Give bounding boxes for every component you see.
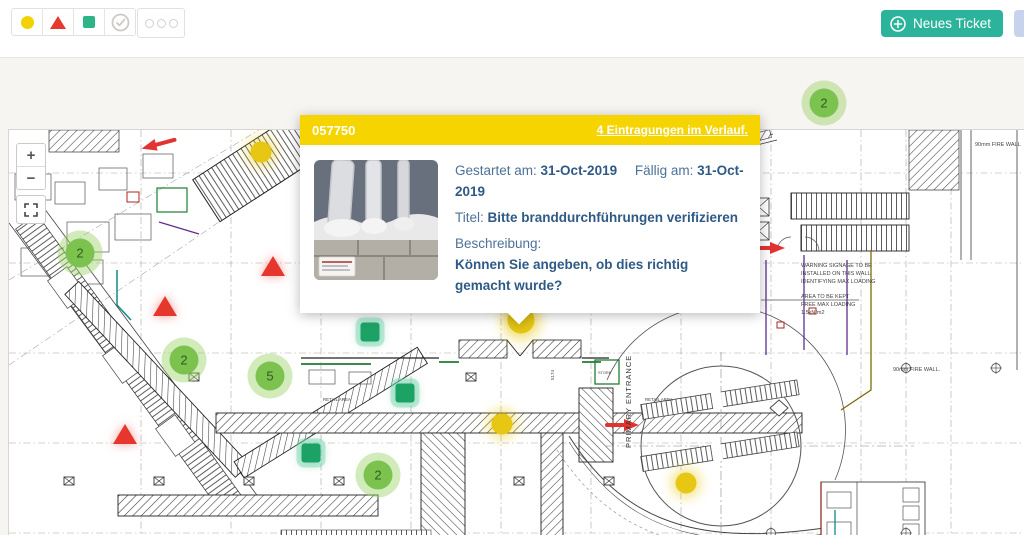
dimension-label-1: 5174 <box>550 369 555 380</box>
ticket-marker-yellow-circle[interactable] <box>676 473 697 494</box>
fire-wall-top-label: 90mm FIRE WALL <box>975 142 1021 148</box>
title-value: Bitte branddurchführungen verifizieren <box>488 210 739 225</box>
cluster-marker[interactable]: 2 <box>364 461 393 490</box>
zoom-in-button[interactable]: + <box>17 144 45 166</box>
red-triangle-icon <box>50 16 66 29</box>
filter-done-button[interactable] <box>105 9 135 35</box>
area-kept-label-line2: FREE MAX LOADING <box>801 302 855 308</box>
title-label: Titel: <box>455 210 484 225</box>
filter-green-square-button[interactable] <box>74 9 105 35</box>
fire-wall-right-label: 90mm FIRE WALL. <box>893 367 941 373</box>
description-label: Beschreibung: <box>455 234 746 255</box>
ticket-id: 057750 <box>312 123 355 138</box>
plus-circle-icon <box>890 16 906 32</box>
ticket-popup: 057750 4 Eintragungen im Verlauf. <box>300 115 760 313</box>
secondary-action-button-cutoff[interactable] <box>1014 10 1024 37</box>
new-ticket-label: Neues Ticket <box>913 16 991 31</box>
retail-area-label-2: RETAIL AREA <box>645 397 673 402</box>
history-link[interactable]: 4 Eintragungen im Verlauf. <box>597 123 748 137</box>
ticket-marker-red-triangle[interactable] <box>153 296 177 316</box>
ticket-photo[interactable] <box>314 160 438 280</box>
ticket-marker-green-square[interactable] <box>361 323 380 342</box>
warning-signage-label-line1: WARNING SIGNAGE TO BE <box>801 263 872 269</box>
area-kept-label-line3: 1.5kN/m2 <box>801 310 825 316</box>
marker-filter-group <box>11 8 136 36</box>
due-label: Fällig am: <box>635 163 694 178</box>
cluster-marker[interactable]: 2 <box>170 346 199 375</box>
warning-signage-label-line3: IDENTIFYING MAX LOADING <box>801 279 876 285</box>
ticket-popup-body: Gestartet am: 31-Oct-2019 Fällig am: 31-… <box>300 145 760 313</box>
more-options-button[interactable] <box>137 8 185 38</box>
ticket-marker-yellow-circle[interactable] <box>492 414 513 435</box>
warning-signage-label-line2: INSTALLED ON THIS WALL <box>801 271 871 277</box>
cluster-marker[interactable]: 2 <box>810 89 839 118</box>
check-circle-icon <box>111 13 130 32</box>
ticket-marker-red-triangle[interactable] <box>113 424 137 444</box>
zoom-out-button[interactable]: − <box>17 166 45 189</box>
top-toolbar: Neues Ticket <box>0 0 1024 58</box>
green-square-icon <box>83 16 95 28</box>
app-window: Neues Ticket <box>0 0 1024 535</box>
filter-red-triangle-button[interactable] <box>43 9 74 35</box>
dots-icon <box>145 19 154 28</box>
fullscreen-button[interactable] <box>16 195 46 224</box>
zoom-controls: + − <box>16 143 46 190</box>
started-value: 31-Oct-2019 <box>541 163 618 178</box>
store-label: STORE <box>598 370 612 375</box>
new-ticket-button[interactable]: Neues Ticket <box>881 10 1003 37</box>
ticket-marker-green-square[interactable] <box>396 384 415 403</box>
ticket-marker-yellow-circle[interactable] <box>251 142 272 163</box>
area-kept-label-line1: AREA TO BE KEPT <box>801 294 850 300</box>
cluster-marker[interactable]: 2 <box>66 239 95 268</box>
retail-area-label-1: RETAIL AREA <box>323 397 351 402</box>
ticket-title-row: Titel: Bitte branddurchführungen verifiz… <box>455 208 746 229</box>
ticket-fields: Gestartet am: 31-Oct-2019 Fällig am: 31-… <box>455 160 746 297</box>
ticket-popup-header: 057750 4 Eintragungen im Verlauf. <box>300 115 760 145</box>
ticket-marker-green-square[interactable] <box>302 444 321 463</box>
filter-yellow-circle-button[interactable] <box>12 9 43 35</box>
cluster-marker[interactable]: 5 <box>256 362 285 391</box>
yellow-circle-icon <box>21 16 34 29</box>
description-value: Können Sie angeben, ob dies richtig gema… <box>455 257 688 293</box>
started-label: Gestartet am: <box>455 163 537 178</box>
fullscreen-icon <box>24 203 38 217</box>
ticket-marker-red-triangle[interactable] <box>261 256 285 276</box>
ticket-dates-row: Gestartet am: 31-Oct-2019 Fällig am: 31-… <box>455 161 746 203</box>
primary-entrance-label: PRIMARY ENTRANCE <box>624 355 633 448</box>
